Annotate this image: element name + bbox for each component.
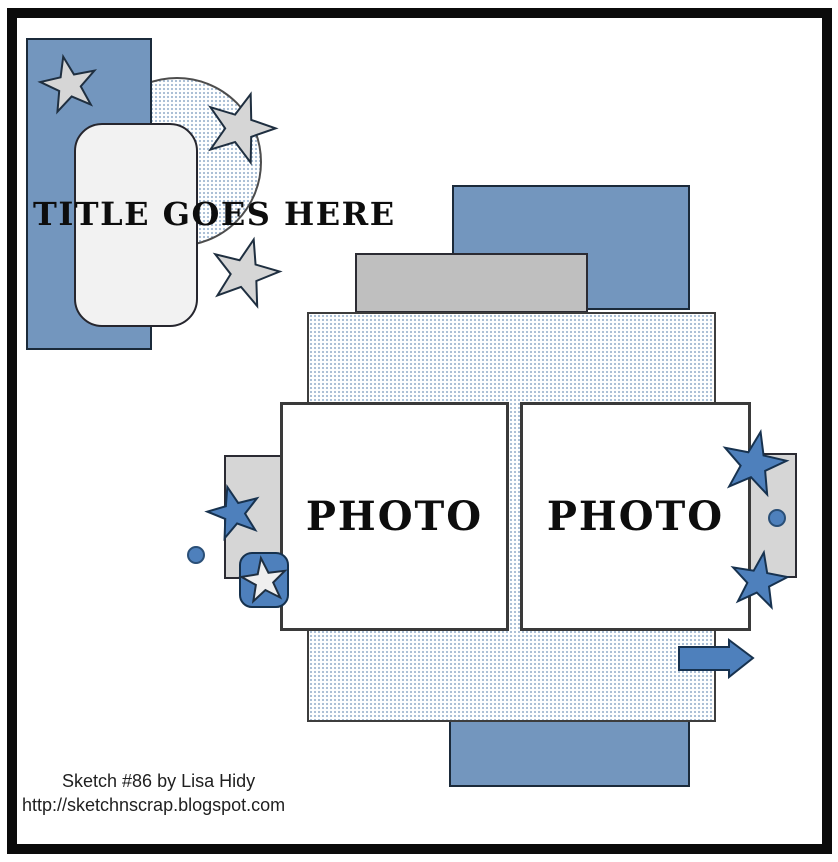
star-icon [715, 424, 793, 502]
photo-label: PHOTO [306, 493, 483, 540]
photo-placeholder-right: PHOTO [520, 402, 751, 631]
sketch-credit: Sketch #86 by Lisa Hidy [62, 771, 255, 792]
brad-dot-icon [768, 509, 786, 527]
star-badge [239, 552, 289, 608]
star-icon [35, 50, 104, 119]
photo-label: PHOTO [547, 493, 724, 540]
title-placeholder-text: TITLE GOES HERE [33, 195, 373, 233]
star-icon [238, 554, 290, 606]
photo-placeholder-left: PHOTO [280, 402, 509, 631]
star-icon [725, 546, 792, 613]
arrow-right-icon [676, 634, 758, 682]
gray-panel-top [355, 253, 588, 313]
blue-panel-bottom [449, 720, 690, 787]
sketch-url: http://sketchnscrap.blogspot.com [22, 795, 285, 816]
brad-dot-icon [187, 546, 205, 564]
